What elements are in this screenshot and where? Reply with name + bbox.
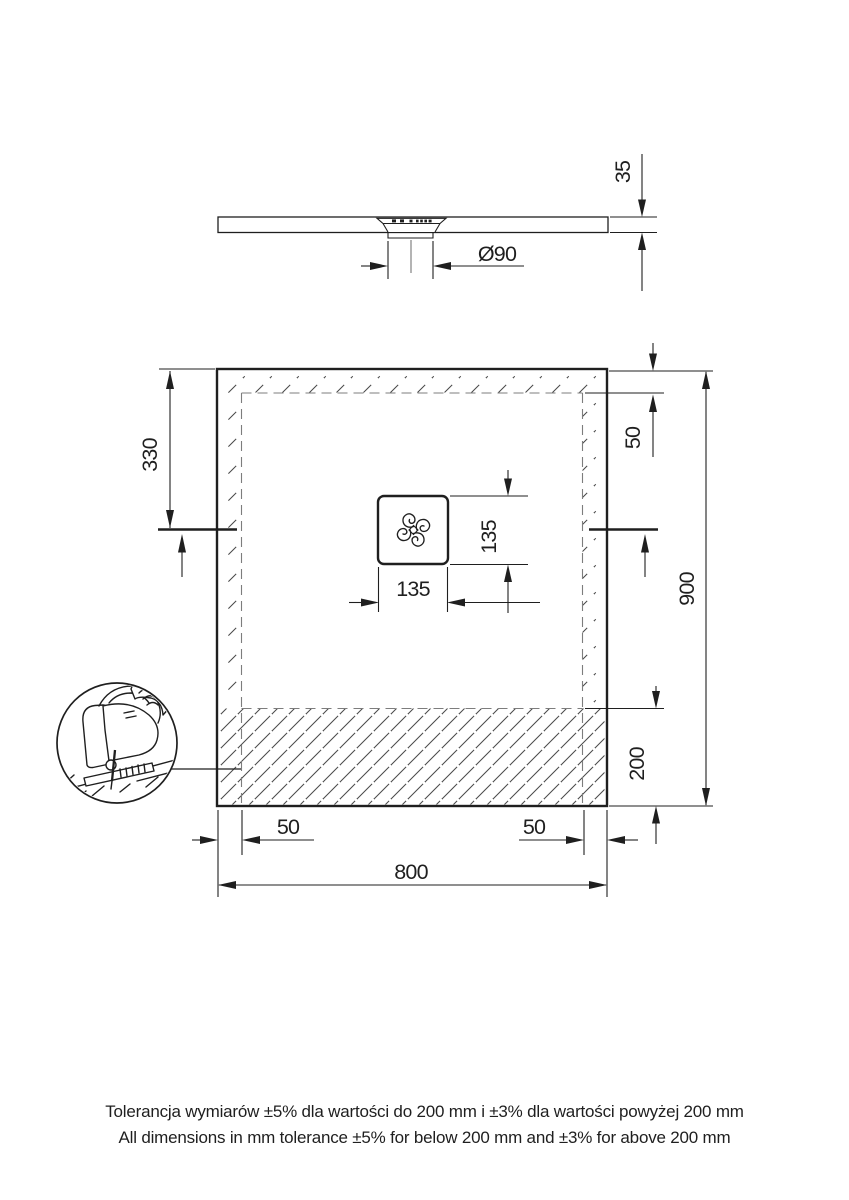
drain-width-label: 135 xyxy=(396,577,430,601)
dim-thickness: 35 xyxy=(610,154,657,291)
side-view: Ø90 35 xyxy=(218,154,657,291)
bottom-left-inset-label: 50 xyxy=(277,815,300,839)
drain-offset-label: 330 xyxy=(138,437,162,471)
dim-drain-offset: 330 xyxy=(138,369,215,528)
top-inset-label: 50 xyxy=(621,426,645,449)
dim-drain-height: 135 xyxy=(450,470,528,613)
drain-diameter-label: Ø90 xyxy=(478,242,517,266)
plan-view: 330 50 900 200 xyxy=(138,343,713,897)
bottom-right-inset-label: 50 xyxy=(523,815,546,839)
hatch-zone-top xyxy=(220,372,605,393)
technical-drawing: Ø90 35 xyxy=(0,0,849,1200)
cut-zone-label: 200 xyxy=(625,746,649,780)
drain-height-label: 135 xyxy=(477,519,501,553)
tolerance-note-pl: Tolerancja wymiarów ±5% dla wartości do … xyxy=(0,1099,849,1125)
jigsaw-detail xyxy=(57,665,241,803)
drain-ornament-icon xyxy=(397,514,429,546)
tolerance-note-en: All dimensions in mm tolerance ±5% for b… xyxy=(0,1125,849,1151)
technical-drawing-page: Ø90 35 xyxy=(0,0,849,1200)
drain-square xyxy=(378,496,448,564)
dim-drain-diameter: Ø90 xyxy=(361,241,524,279)
tray-height-label: 900 xyxy=(675,571,699,605)
tray-width-label: 800 xyxy=(394,860,428,884)
thickness-label: 35 xyxy=(611,160,635,183)
hatch-zone-left xyxy=(220,393,242,709)
hatch-zone-bottom xyxy=(220,709,605,805)
hatch-zone-right xyxy=(583,393,605,709)
tolerance-notes: Tolerancja wymiarów ±5% dla wartości do … xyxy=(0,1099,849,1151)
drain-recess xyxy=(383,224,440,233)
dim-drain-width: 135 xyxy=(349,567,540,612)
dim-tray-width: 800 xyxy=(218,860,607,889)
